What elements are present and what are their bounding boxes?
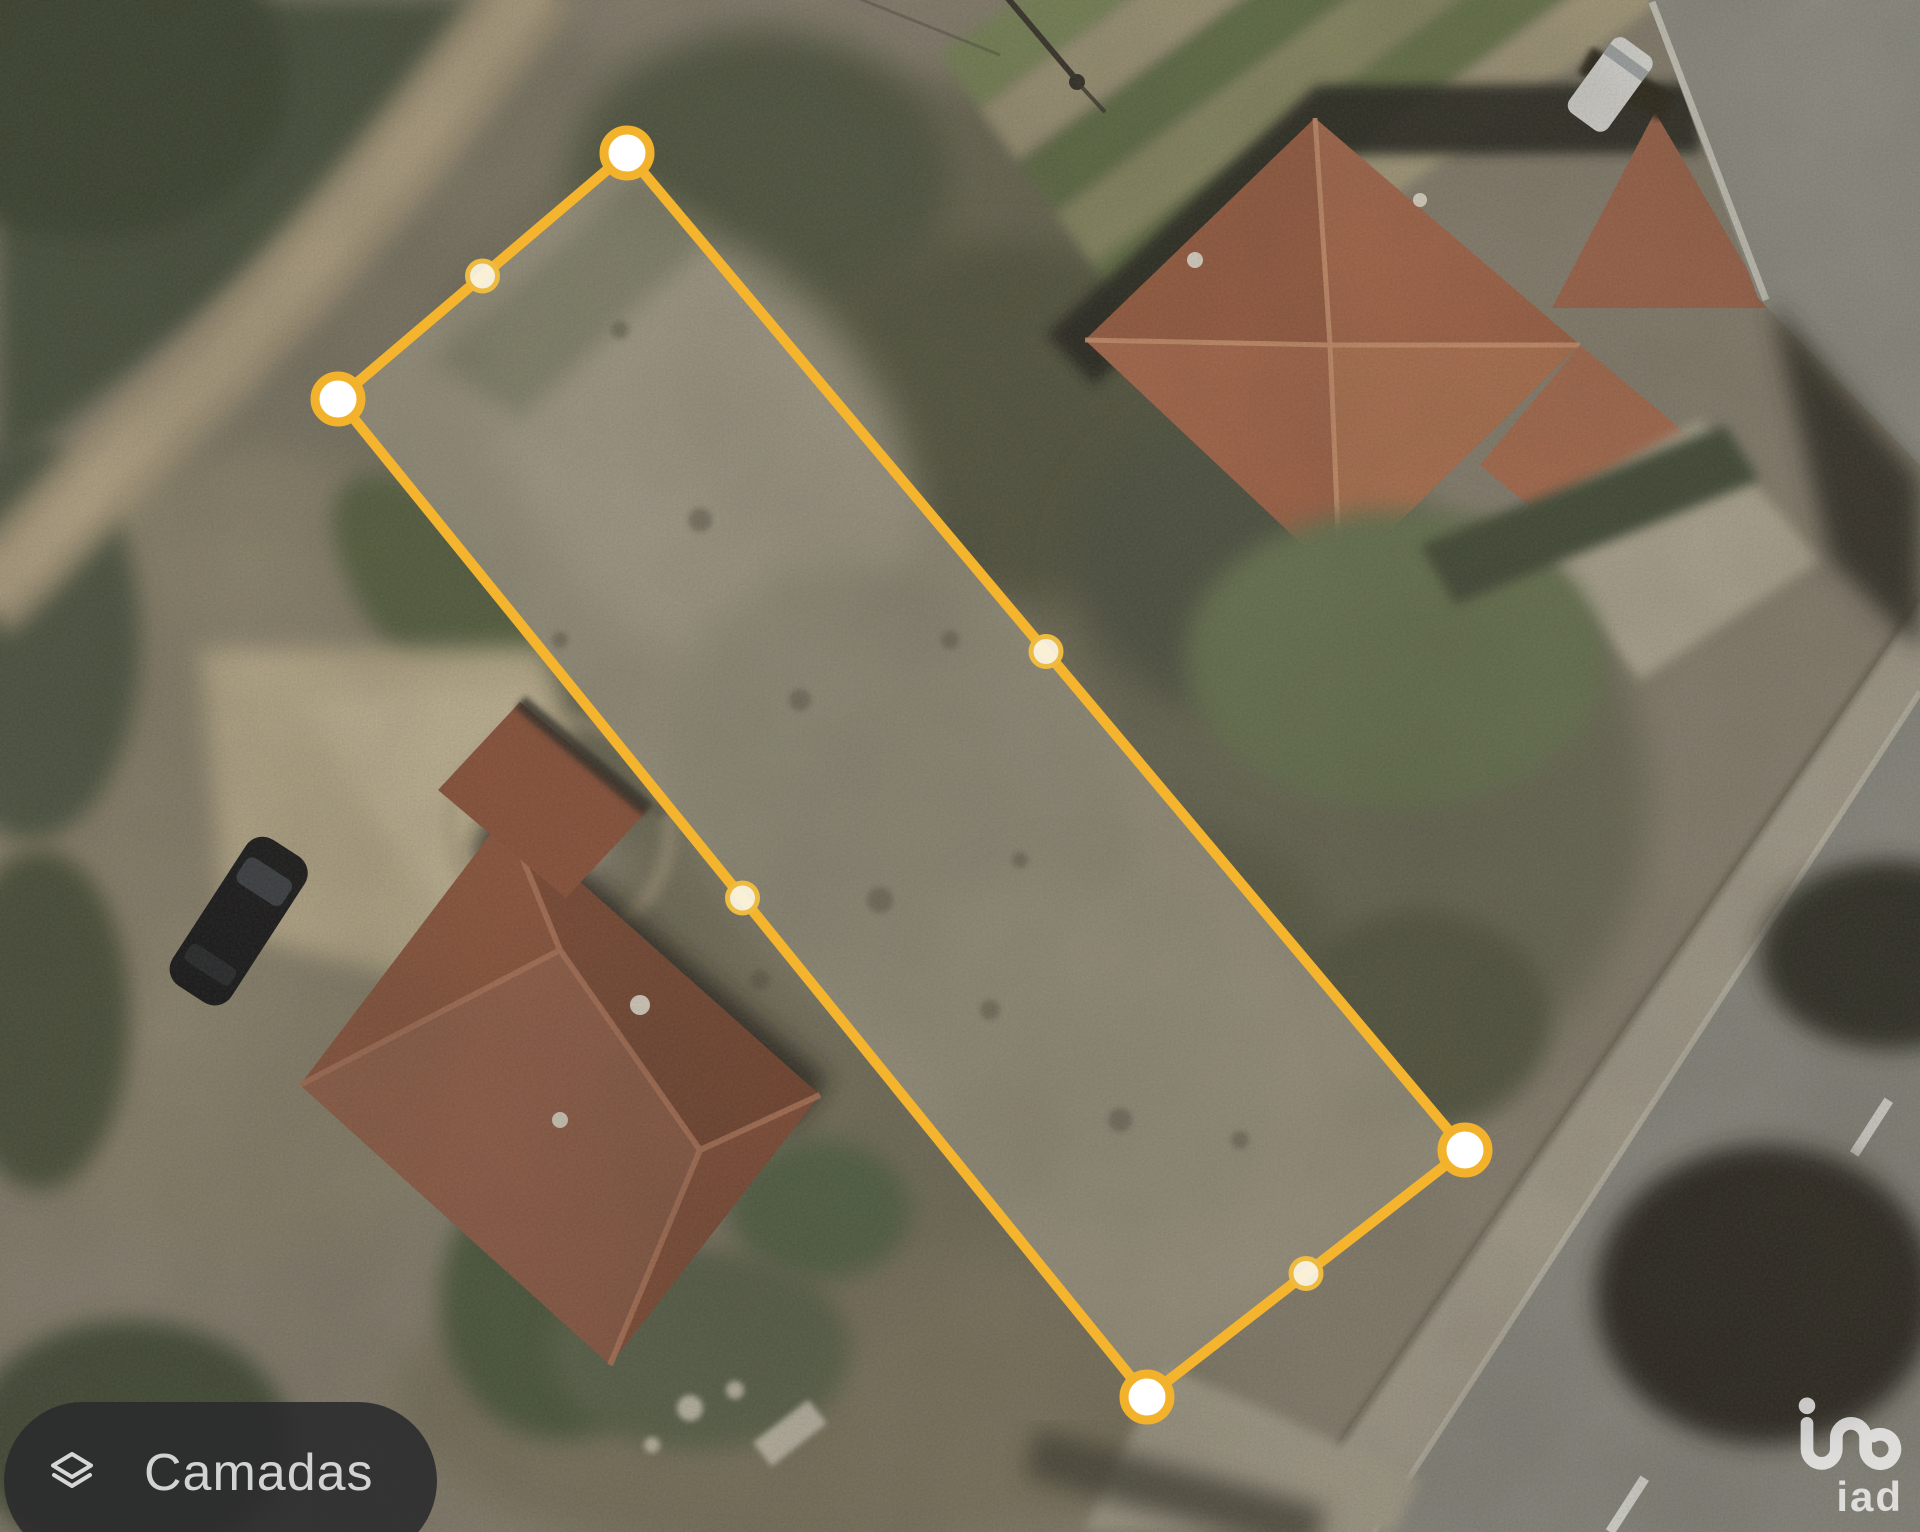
polygon-midpoint-handle[interactable]: [728, 883, 758, 913]
polygon-midpoint-handle[interactable]: [1291, 1259, 1321, 1289]
polygon-vertex-handle[interactable]: [1442, 1127, 1488, 1173]
satellite-map[interactable]: Camadas iad: [0, 0, 1920, 1532]
layers-button[interactable]: Camadas: [4, 1402, 437, 1532]
polygon-vertex-handle[interactable]: [1124, 1374, 1170, 1420]
iad-logo-text: iad: [1836, 1476, 1903, 1518]
iad-watermark: iad: [1795, 1396, 1903, 1518]
iad-logo-icon: [1795, 1396, 1903, 1480]
layers-icon: [48, 1449, 96, 1497]
satellite-imagery: [0, 0, 1920, 1532]
polygon-midpoint-handle[interactable]: [468, 261, 498, 291]
polygon-vertex-handle[interactable]: [604, 130, 650, 176]
layers-button-label: Camadas: [144, 1447, 374, 1499]
polygon-midpoint-handle[interactable]: [1031, 637, 1061, 667]
polygon-vertex-handle[interactable]: [315, 376, 361, 422]
